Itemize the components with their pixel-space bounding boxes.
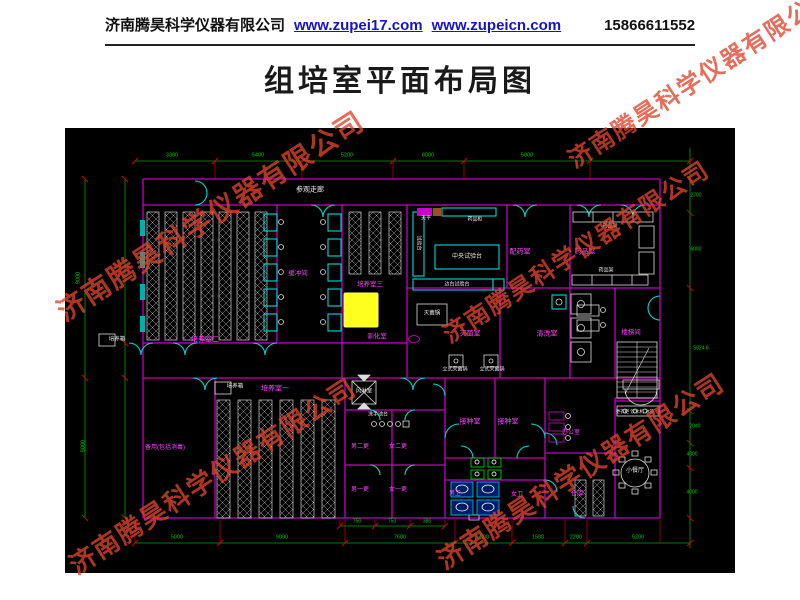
dimension-label: 4000: [686, 453, 697, 458]
dimension-label: 6000: [690, 248, 701, 253]
equipment-label: 风淋室: [356, 389, 373, 395]
dimension-label: 2700: [690, 194, 701, 199]
room-label: 药品室: [575, 249, 596, 256]
room-label: 培养室三: [357, 282, 383, 289]
equipment-label: 天平: [421, 217, 431, 222]
room-label: 缓冲间: [288, 271, 308, 278]
highlight-box: [344, 293, 378, 327]
room-label: 接种室: [460, 419, 481, 426]
company-name: 济南腾昊科学仪器有限公司: [105, 14, 285, 35]
dimension-label: 4000: [686, 491, 697, 496]
equipment-label: 培养箱: [227, 384, 244, 390]
header: 济南腾昊科学仪器有限公司 www.zupei17.com www.zupeicn…: [0, 14, 800, 35]
room-label: 培养室一: [261, 386, 289, 393]
equipment-label: 培养箱: [109, 337, 126, 343]
room-label: 男一更: [351, 487, 369, 493]
clean-benches: [471, 458, 501, 479]
dimension-label: 5000: [521, 153, 533, 159]
dimension-label: 5000: [171, 535, 183, 541]
room-label: 仓库: [571, 491, 584, 498]
page-title: 组培室平面布局图: [0, 56, 800, 100]
room-label: 男二更: [351, 444, 369, 450]
dimension-label: 6000: [477, 535, 489, 541]
equipment-label: 小餐厅: [626, 468, 644, 474]
room-label: 女二更: [389, 444, 407, 450]
equipment-label: 中央试验台: [452, 254, 482, 260]
equipment-label: 参观走廊: [296, 187, 324, 194]
equipment-label: 试验台: [416, 235, 421, 250]
room-label: 女一更: [389, 487, 407, 493]
dimension-label: 5000: [81, 440, 87, 452]
dimension-label: 9000: [76, 272, 82, 284]
dimension-label: 6000: [422, 153, 434, 159]
equipment-label: 立式灭菌锅: [479, 368, 504, 373]
room-label: 培养室二: [191, 337, 219, 344]
floor-plan: 参观走廊培养箱培养室二培养箱培养室一缓冲间培养室三驯化室天平药品柜中央试验台边台…: [65, 128, 735, 573]
room-label: 备用(包括消毒): [145, 445, 185, 451]
dimension-label: 5200: [632, 535, 644, 541]
equipment-label: 洗手池台: [368, 413, 388, 418]
pc-box: [433, 208, 441, 216]
link-zupei17[interactable]: www.zupei17.com: [294, 17, 423, 34]
room-label: 女卫: [511, 492, 523, 498]
room-label: 办公室: [562, 430, 580, 436]
toilet-fixtures: [451, 482, 499, 515]
equipment-label: 药品柜: [467, 218, 482, 223]
equipment-label: 更衣柜 饮水机 冰箱: [616, 410, 655, 415]
dimension-label: 5400: [252, 153, 264, 159]
phone-number: 15866611552: [604, 17, 695, 34]
dimension-label: 7600: [394, 535, 406, 541]
dimension-label: 2200: [570, 535, 582, 541]
dimension-label: 380: [423, 520, 431, 525]
equipment-label: 灭菌锅: [424, 311, 441, 317]
room-label: 配药室: [510, 249, 531, 256]
room-label: 接种室: [498, 419, 519, 426]
dimension-label: 3300: [166, 153, 178, 159]
dimension-label: 9000: [276, 535, 288, 541]
dimension-label: 5200: [341, 153, 353, 159]
room-label: 清洗室: [537, 331, 558, 338]
office-desks: [409, 336, 571, 443]
room-label: 男卫: [449, 491, 461, 497]
equipment-label: 边台试验台: [444, 283, 469, 288]
floor-plan-drawing: [65, 128, 735, 573]
dimension-label: 5024.6: [693, 347, 708, 352]
equipment-label: 药品架: [602, 225, 617, 230]
page: 济南腾昊科学仪器有限公司 www.zupei17.com www.zupeicn…: [0, 0, 800, 600]
header-divider: [105, 44, 695, 46]
room-label: 楼梯间: [621, 330, 641, 337]
equipment-label: 药品架: [598, 269, 613, 274]
equipment-label: 立式灭菌锅: [442, 368, 467, 373]
room-label: 灭菌室: [460, 331, 481, 338]
room-label: 驯化室: [367, 334, 387, 341]
dimension-label: 2040: [689, 425, 700, 430]
dimension-label: 750: [353, 520, 361, 525]
dimension-label: 750: [388, 520, 396, 525]
dimension-label: 1500: [532, 535, 544, 541]
link-zupeicn[interactable]: www.zupeicn.com: [432, 17, 561, 34]
